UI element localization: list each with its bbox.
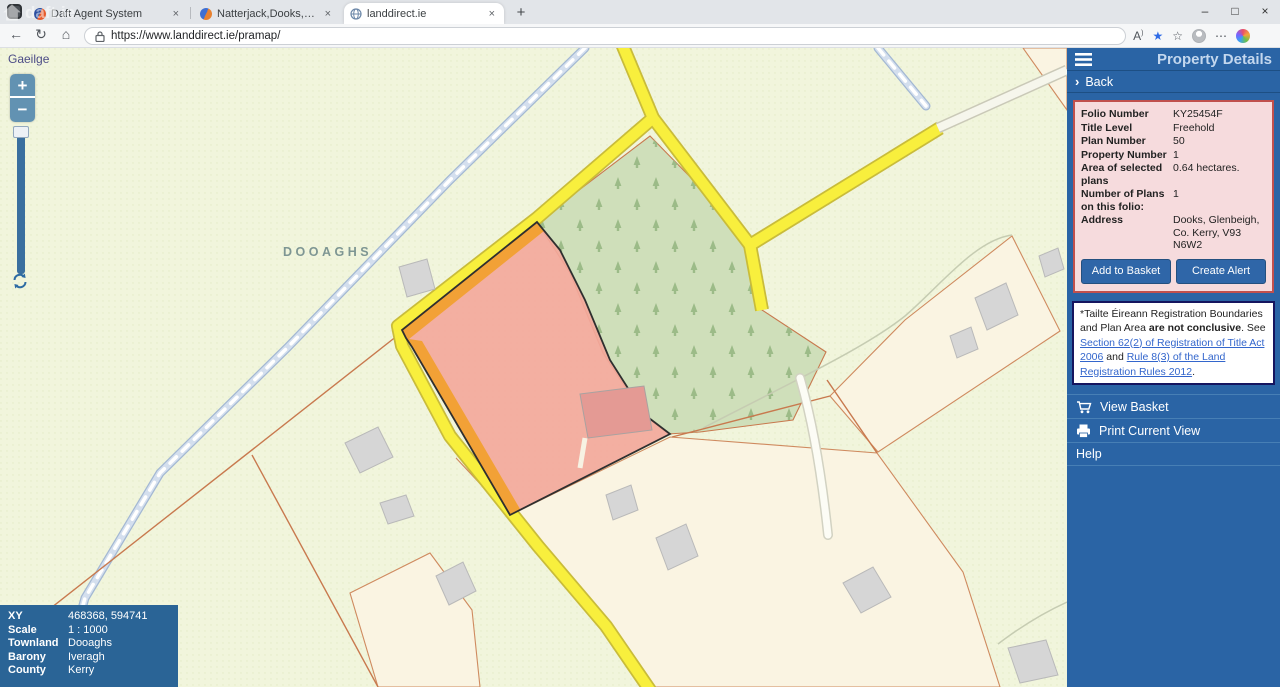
disclaimer-note: *Tailte Éireann Registration Boundaries …: [1072, 301, 1275, 386]
address-bar[interactable]: https://www.landdirect.ie/pramap/: [84, 27, 1126, 45]
refresh-icon[interactable]: ↻: [31, 26, 51, 43]
map-refresh-icon[interactable]: [11, 272, 29, 290]
scale-value: 1 : 1000: [68, 624, 108, 638]
zoom-in-button[interactable]: +: [10, 74, 35, 98]
view-basket-button[interactable]: View Basket: [1067, 394, 1280, 418]
zoom-slider-handle[interactable]: [13, 126, 29, 138]
property-number-value: 1: [1173, 149, 1266, 162]
globe-favicon: [350, 8, 362, 20]
zoom-slider-track[interactable]: [17, 132, 25, 274]
chevron-right-icon: ›: [1075, 74, 1079, 89]
plans-count-value: 1: [1173, 188, 1266, 213]
add-to-basket-button[interactable]: Add to Basket: [1081, 259, 1171, 284]
profile-avatar[interactable]: [1192, 29, 1206, 43]
panel-title: Property Details: [1092, 51, 1272, 68]
title-level-value: Freehold: [1173, 122, 1266, 135]
home-icon[interactable]: ⌂: [56, 26, 76, 42]
tab-actions-icon[interactable]: [7, 4, 22, 19]
url-text: https://www.landdirect.ie/pramap/: [111, 30, 280, 42]
tab-daft-agent-system[interactable]: Daft Agent System ×: [28, 3, 188, 24]
favorites-star-icon[interactable]: ★: [1152, 29, 1163, 43]
townland-map-label: DOOAGHS: [283, 245, 372, 259]
back-icon[interactable]: ←: [6, 26, 26, 42]
plan-number-value: 50: [1173, 135, 1266, 148]
property-details-panel: Property Details › Back Folio NumberKY25…: [1067, 48, 1280, 687]
tab-divider: [190, 7, 191, 19]
close-tab-icon[interactable]: ×: [322, 8, 334, 20]
daft-favicon: [200, 8, 212, 20]
map-info-box: XY468368, 594741 Scale1 : 1000 TownlandD…: [0, 605, 178, 687]
collections-icon[interactable]: ☆: [1172, 29, 1183, 43]
browser-window: Daft Agent System × Natterjack,Dooks, Gl…: [0, 0, 1280, 687]
minimize-button[interactable]: –: [1190, 0, 1220, 24]
county-value: Kerry: [68, 664, 94, 678]
xy-value: 468368, 594741: [68, 610, 148, 624]
close-tab-icon[interactable]: ×: [170, 8, 182, 20]
barony-value: Iveragh: [68, 651, 105, 665]
copilot-icon[interactable]: [1236, 29, 1250, 43]
tab-natterjack-dooks[interactable]: Natterjack,Dooks, Glenbeigh, Co. ×: [194, 3, 340, 24]
read-aloud-icon[interactable]: A: [1133, 29, 1143, 43]
help-button[interactable]: Help: [1067, 442, 1280, 466]
maximize-button[interactable]: □: [1220, 0, 1250, 24]
lock-icon: [95, 31, 105, 42]
close-tab-icon[interactable]: ×: [486, 8, 498, 20]
property-details-card: Folio NumberKY25454F Title LevelFreehold…: [1073, 100, 1274, 293]
zoom-out-button[interactable]: −: [10, 98, 35, 122]
map-canvas[interactable]: DOOAGHS: [0, 48, 1067, 687]
area-value: 0.64 hectares.: [1173, 162, 1266, 187]
browser-toolbar: ← ↻ ⌂ https://www.landdirect.ie/pramap/ …: [0, 24, 1280, 48]
settings-ellipsis-icon[interactable]: ⋯: [1215, 29, 1227, 43]
folio-number-value: KY25454F: [1173, 108, 1266, 121]
building-in-parcel: [580, 386, 652, 438]
print-current-view-button[interactable]: Print Current View: [1067, 418, 1280, 442]
new-tab-button[interactable]: +: [512, 4, 530, 21]
townland-value: Dooaghs: [68, 637, 112, 651]
tab-strip: Daft Agent System × Natterjack,Dooks, Gl…: [0, 0, 1280, 24]
menu-hamburger-icon[interactable]: [1075, 53, 1092, 66]
gaeilge-language-link[interactable]: Gaeilge: [8, 52, 49, 66]
address-value: Dooks, Glenbeigh, Co. Kerry, V93 N6W2: [1173, 214, 1266, 252]
basket-icon: [1076, 400, 1092, 414]
back-button[interactable]: › Back: [1067, 71, 1280, 93]
close-window-button[interactable]: ×: [1250, 0, 1280, 24]
daft-favicon: [34, 8, 46, 20]
tab-landdirect[interactable]: landdirect.ie ×: [344, 3, 504, 24]
zoom-controls: + −: [10, 74, 35, 122]
create-alert-button[interactable]: Create Alert: [1176, 259, 1266, 284]
printer-icon: [1076, 424, 1091, 438]
